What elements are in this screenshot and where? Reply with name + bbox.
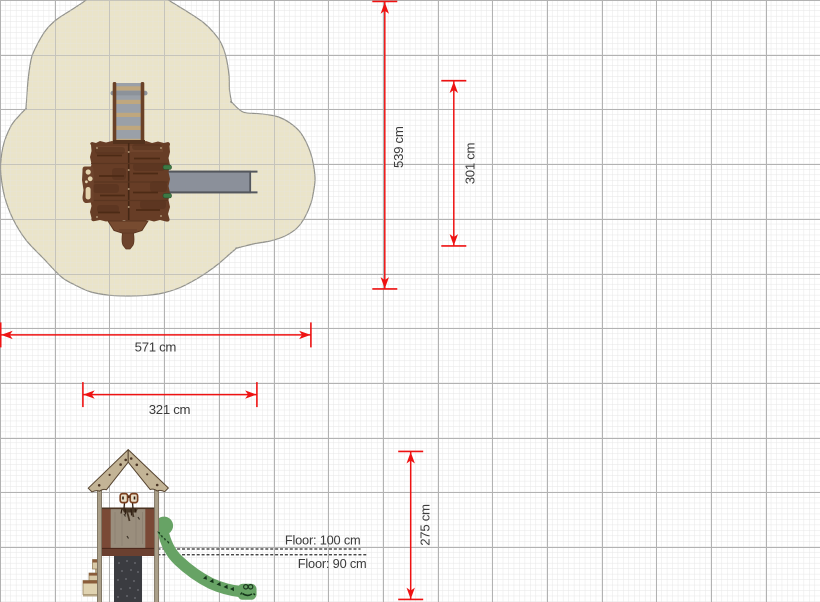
svg-text:539 cm: 539 cm [391, 126, 406, 168]
svg-text:Floor: 90 cm: Floor: 90 cm [298, 556, 367, 571]
svg-text:Floor: 100 cm: Floor: 100 cm [285, 532, 361, 547]
svg-text:301 cm: 301 cm [462, 142, 477, 184]
svg-text:571 cm: 571 cm [135, 340, 177, 355]
svg-text:275 cm: 275 cm [417, 504, 432, 546]
svg-text:321 cm: 321 cm [149, 402, 191, 417]
